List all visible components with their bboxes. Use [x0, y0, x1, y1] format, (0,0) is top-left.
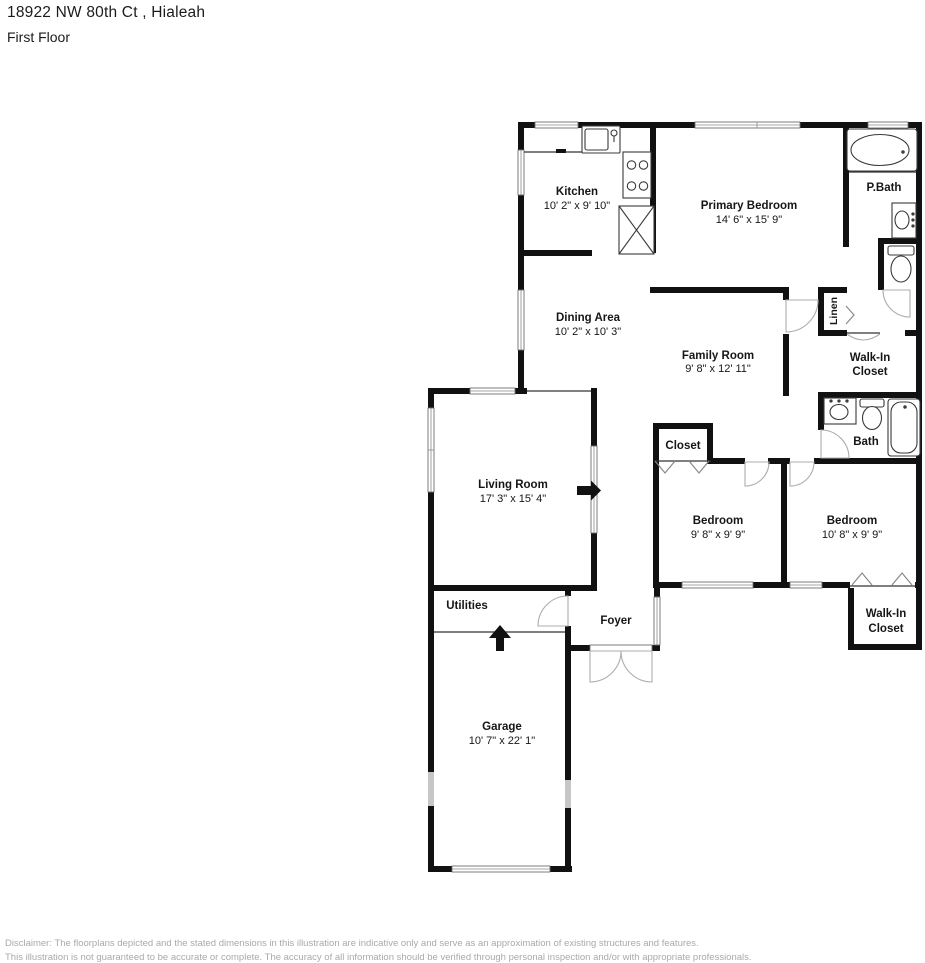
- bath-sink-icon: [824, 398, 856, 424]
- room-label-primary-bedroom: Primary Bedroom: [701, 200, 798, 212]
- room-label-utilities: Utilities: [446, 600, 488, 612]
- room-label-dining-area: Dining Area: [556, 312, 621, 324]
- room-label-bedroom-2: Bedroom: [827, 515, 877, 527]
- room-dims-kitchen: 10' 2" x 9' 10": [544, 200, 611, 212]
- room-label-foyer: Foyer: [600, 615, 632, 627]
- bedroom2-door-arc: [790, 462, 814, 486]
- water-closet-door-arc: [883, 290, 910, 317]
- pbath-toilet-icon: [888, 246, 914, 282]
- pbath-sink-icon: [892, 203, 916, 238]
- walkin-door-arc: [847, 334, 880, 340]
- closet-caret-icon: [892, 573, 912, 585]
- room-dims-family-room: 9' 8" x 12' 11": [685, 363, 751, 375]
- room-label-walkin-upper-1: Walk-In: [850, 352, 890, 364]
- room-label-closet: Closet: [665, 440, 700, 452]
- room-dims-bedroom-2: 10' 8" x 9' 9": [822, 529, 882, 541]
- kitchen-sink-icon: [582, 126, 620, 153]
- disclaimer-line-1: Disclaimer: The floorplans depicted and …: [5, 938, 699, 949]
- room-label-kitchen: Kitchen: [556, 186, 598, 198]
- room-label-walkin-lower-2: Closet: [868, 623, 903, 635]
- room-label-walkin-upper-2: Closet: [852, 366, 887, 378]
- counter-tick: [556, 149, 566, 153]
- room-label-living-room: Living Room: [478, 479, 548, 491]
- room-label-garage: Garage: [482, 721, 522, 733]
- bedroom1-door-arc: [745, 462, 769, 486]
- room-dims-garage: 10' 7" x 22' 1": [469, 735, 536, 747]
- closet-bifold-icon: [689, 461, 709, 473]
- room-label-bath: Bath: [853, 436, 879, 448]
- step-arrow-icon: [489, 625, 511, 651]
- entry-door-right-arc: [621, 651, 652, 682]
- closet-caret-icon: [852, 573, 872, 585]
- bath-door-arc: [821, 430, 849, 458]
- room-dims-bedroom-1: 9' 8" x 9' 9": [691, 529, 745, 541]
- utilities-door-arc: [538, 596, 568, 626]
- entry-door-left-arc: [590, 651, 621, 682]
- hall-door-arc: [786, 300, 818, 332]
- room-dims-living-room: 17' 3" x 15' 4": [480, 493, 547, 505]
- room-label-bedroom-1: Bedroom: [693, 515, 743, 527]
- room-label-linen: Linen: [828, 297, 840, 325]
- stove-icon: [623, 152, 651, 198]
- room-label-family-room: Family Room: [682, 350, 754, 362]
- bath-bathtub-icon: [888, 399, 920, 456]
- room-label-pbath: P.Bath: [867, 182, 902, 194]
- room-dims-primary-bedroom: 14' 6" x 15' 9": [716, 214, 783, 226]
- room-dims-dining-area: 10' 2" x 10' 3": [555, 326, 622, 338]
- disclaimer-line-2: This illustration is not guaranteed to b…: [5, 952, 752, 963]
- garage-wall-gaps: [428, 772, 571, 808]
- floor-plan: Kitchen 10' 2" x 9' 10" Primary Bedroom …: [0, 0, 925, 960]
- bath-toilet-icon: [860, 399, 884, 430]
- linen-chevron-icon: [846, 306, 854, 324]
- pbath-bathtub-icon: [847, 129, 917, 171]
- room-label-walkin-lower-1: Walk-In: [866, 608, 906, 620]
- pantry-icon: [619, 206, 654, 254]
- room-labels: Kitchen 10' 2" x 9' 10" Primary Bedroom …: [446, 182, 906, 747]
